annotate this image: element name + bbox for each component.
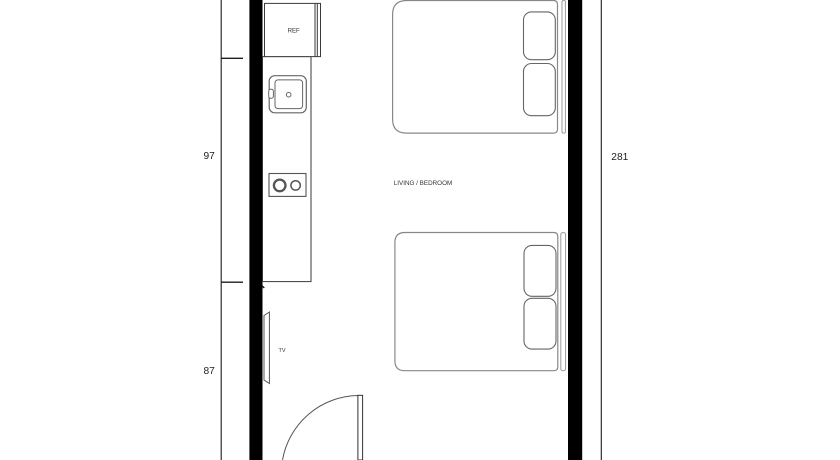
svg-text:TV: TV [279,348,286,354]
svg-text:97: 97 [203,151,215,162]
svg-text:REF: REF [288,28,300,35]
svg-text:281: 281 [611,152,628,163]
svg-text:LIVING / BEDROOM: LIVING / BEDROOM [394,180,452,187]
svg-text:87: 87 [203,366,215,377]
